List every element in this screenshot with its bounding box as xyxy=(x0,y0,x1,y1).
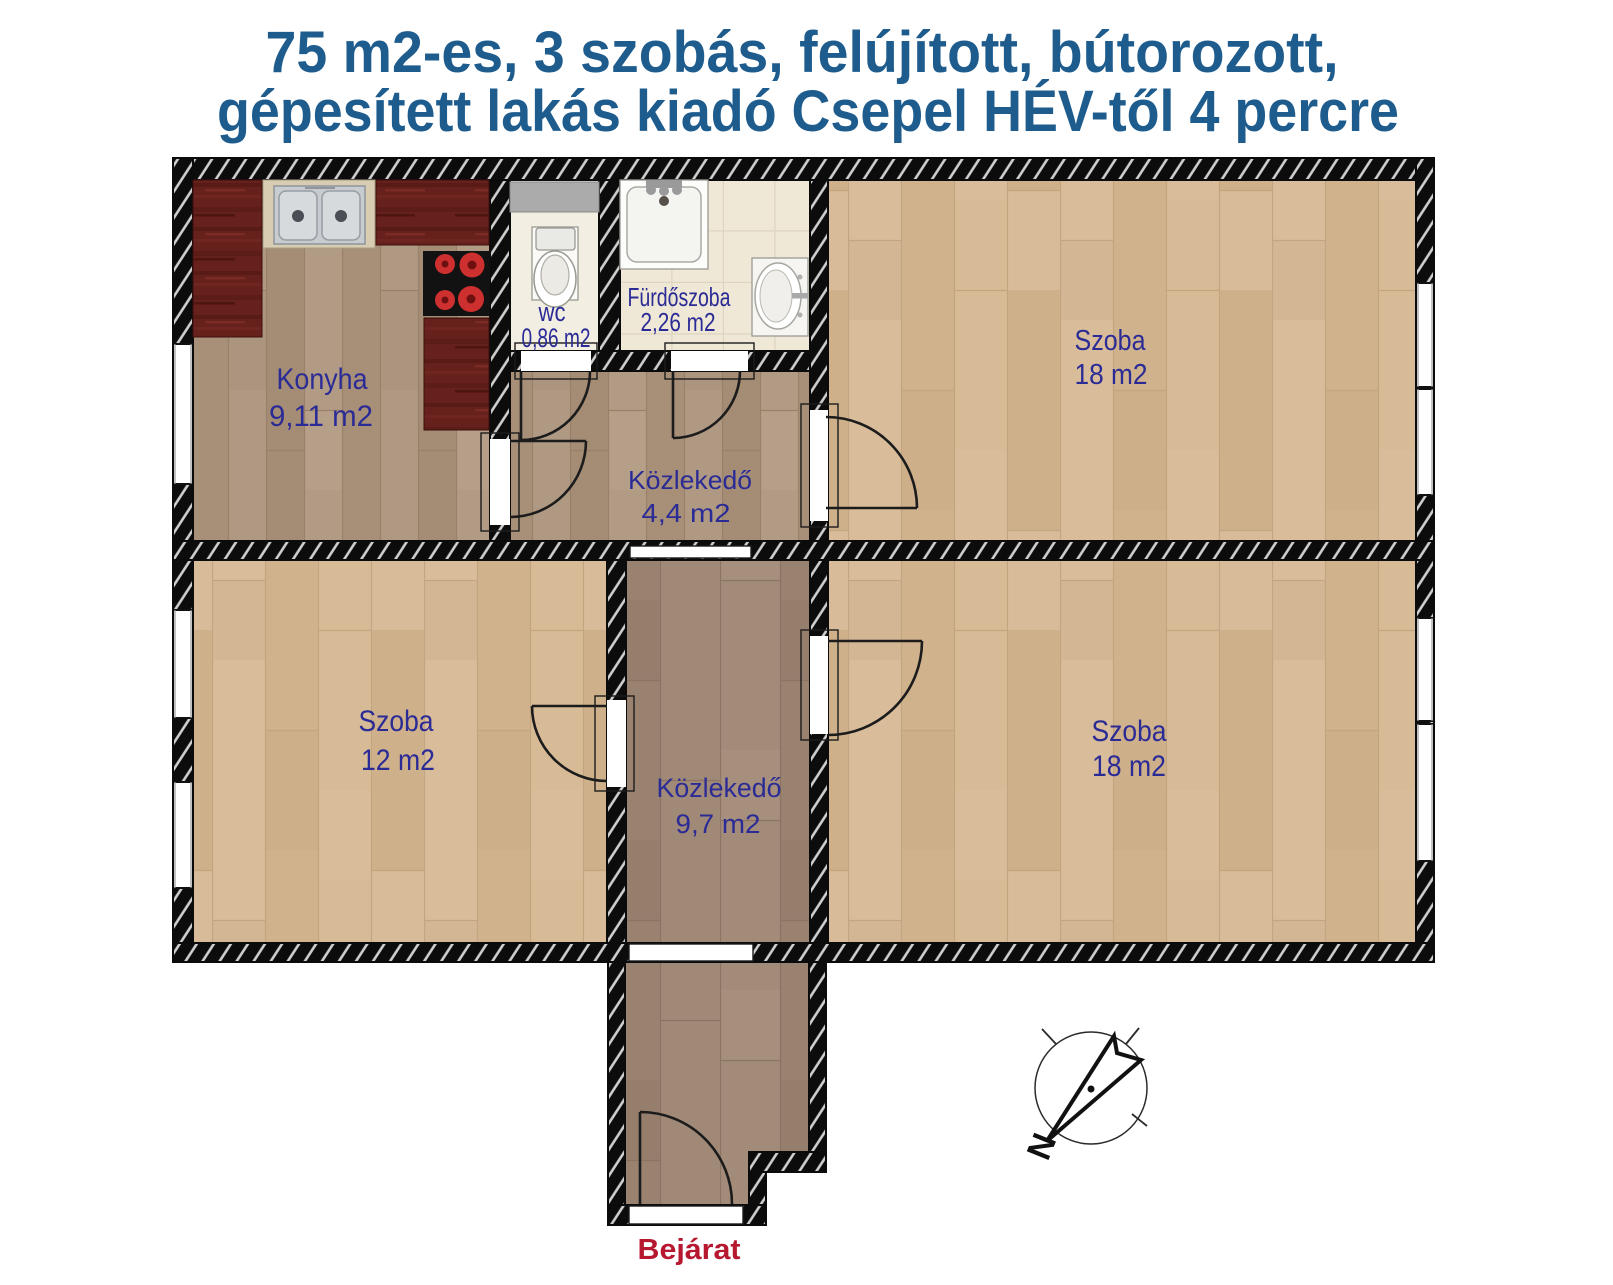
svg-text:Bejárat: Bejárat xyxy=(638,1234,741,1266)
svg-text:Konyha: Konyha xyxy=(277,363,368,396)
svg-text:4,4 m2: 4,4 m2 xyxy=(642,498,731,528)
svg-text:9,11 m2: 9,11 m2 xyxy=(269,400,373,433)
svg-text:Közlekedő: Közlekedő xyxy=(657,773,782,803)
svg-text:9,7 m2: 9,7 m2 xyxy=(676,809,761,839)
svg-text:Szoba: Szoba xyxy=(359,705,434,738)
svg-text:2,26 m2: 2,26 m2 xyxy=(641,307,716,337)
svg-text:18 m2: 18 m2 xyxy=(1075,359,1148,391)
svg-text:75 m2-es, 3 szobás, felújított: 75 m2-es, 3 szobás, felújított, bútorozo… xyxy=(266,20,1339,85)
svg-text:Szoba: Szoba xyxy=(1092,715,1167,748)
svg-text:18 m2: 18 m2 xyxy=(1092,750,1166,783)
svg-text:Közlekedő: Közlekedő xyxy=(628,465,752,495)
svg-text:gépesített lakás kiadó Csepel: gépesített lakás kiadó Csepel HÉV-től 4 … xyxy=(217,79,1399,144)
svg-text:0,86 m2: 0,86 m2 xyxy=(522,323,591,353)
svg-text:Szoba: Szoba xyxy=(1075,325,1147,357)
svg-text:12 m2: 12 m2 xyxy=(361,744,435,777)
